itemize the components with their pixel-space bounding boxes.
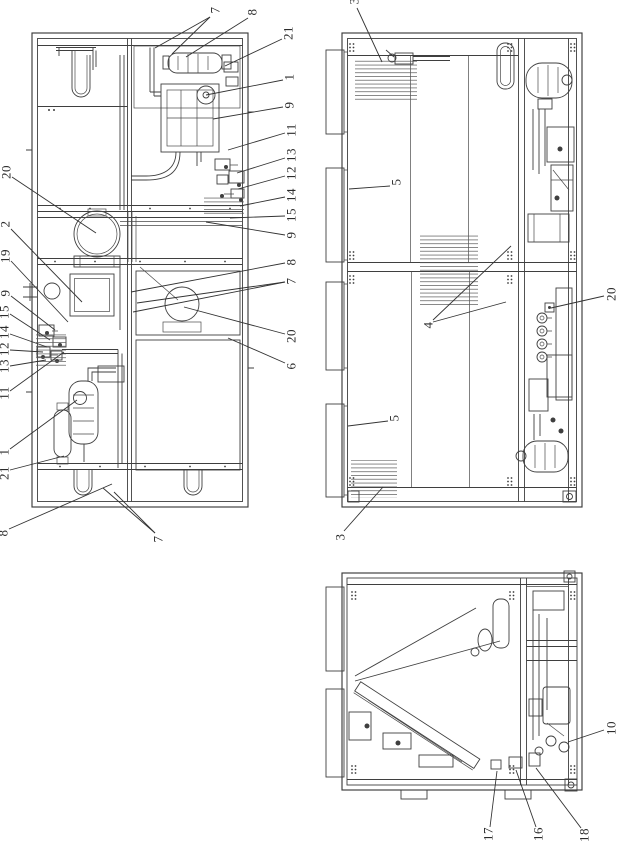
callout-side-view-17-1: 17 (482, 827, 495, 841)
callout-plan-view-20-15: 20 (0, 165, 13, 179)
callout-plan-view-8-1: 8 (246, 9, 259, 16)
callout-side-view-16-2: 16 (532, 827, 545, 841)
callout-plan-view-11-5: 11 (285, 123, 298, 137)
callout-plan-view-8-11: 8 (285, 259, 298, 266)
callout-plan-view-7-12: 7 (285, 278, 298, 285)
callout-front-view-5-4: 5 (388, 415, 401, 422)
callout-side-view-10-0: 10 (605, 721, 617, 735)
callout-plan-view-21-25: 21 (0, 466, 11, 480)
callout-plan-view-6-14: 6 (285, 363, 298, 370)
callout-plan-view-9-18: 9 (0, 290, 12, 297)
callout-plan-view-14-8: 14 (285, 188, 298, 202)
callout-plan-view-9-4: 9 (283, 102, 296, 109)
callout-plan-view-19-17: 19 (0, 249, 12, 263)
callout-plan-view-12-7: 12 (285, 166, 298, 180)
page: 7821191113121415987206202199151412131112… (0, 0, 617, 846)
callout-plan-view-14-20: 14 (0, 325, 11, 339)
callout-plan-view-15-19: 15 (0, 305, 11, 319)
callout-plan-view-15-9: 15 (285, 208, 298, 222)
callout-plan-view-21-2: 21 (282, 26, 295, 40)
callout-plan-view-20-13: 20 (285, 329, 298, 343)
callout-front-view-4-2: 4 (422, 322, 435, 329)
callout-plan-view-8-26: 8 (0, 530, 10, 537)
callout-plan-view-11-23: 11 (0, 386, 11, 400)
callout-plan-view-2-16: 2 (0, 221, 12, 228)
callout-plan-view-13-6: 13 (285, 148, 298, 162)
callout-plan-view-1-3: 1 (283, 74, 296, 81)
callout-front-view-5-1: 5 (390, 179, 403, 186)
callout-plan-view-7-0: 7 (209, 7, 222, 14)
callout-front-view-20-3: 20 (605, 287, 617, 301)
callout-front-view-3-5: 3 (334, 534, 347, 541)
callout-front-view-3-0: 3 (348, 0, 361, 5)
callout-plan-view-12-21: 12 (0, 342, 11, 356)
callout-labels: 7821191113121415987206202199151412131112… (0, 0, 617, 846)
callout-plan-view-1-24: 1 (0, 449, 11, 456)
callout-plan-view-7-27: 7 (152, 536, 165, 543)
callout-side-view-18-3: 18 (578, 828, 591, 842)
callout-plan-view-13-22: 13 (0, 359, 11, 373)
callout-plan-view-9-10: 9 (285, 232, 298, 239)
